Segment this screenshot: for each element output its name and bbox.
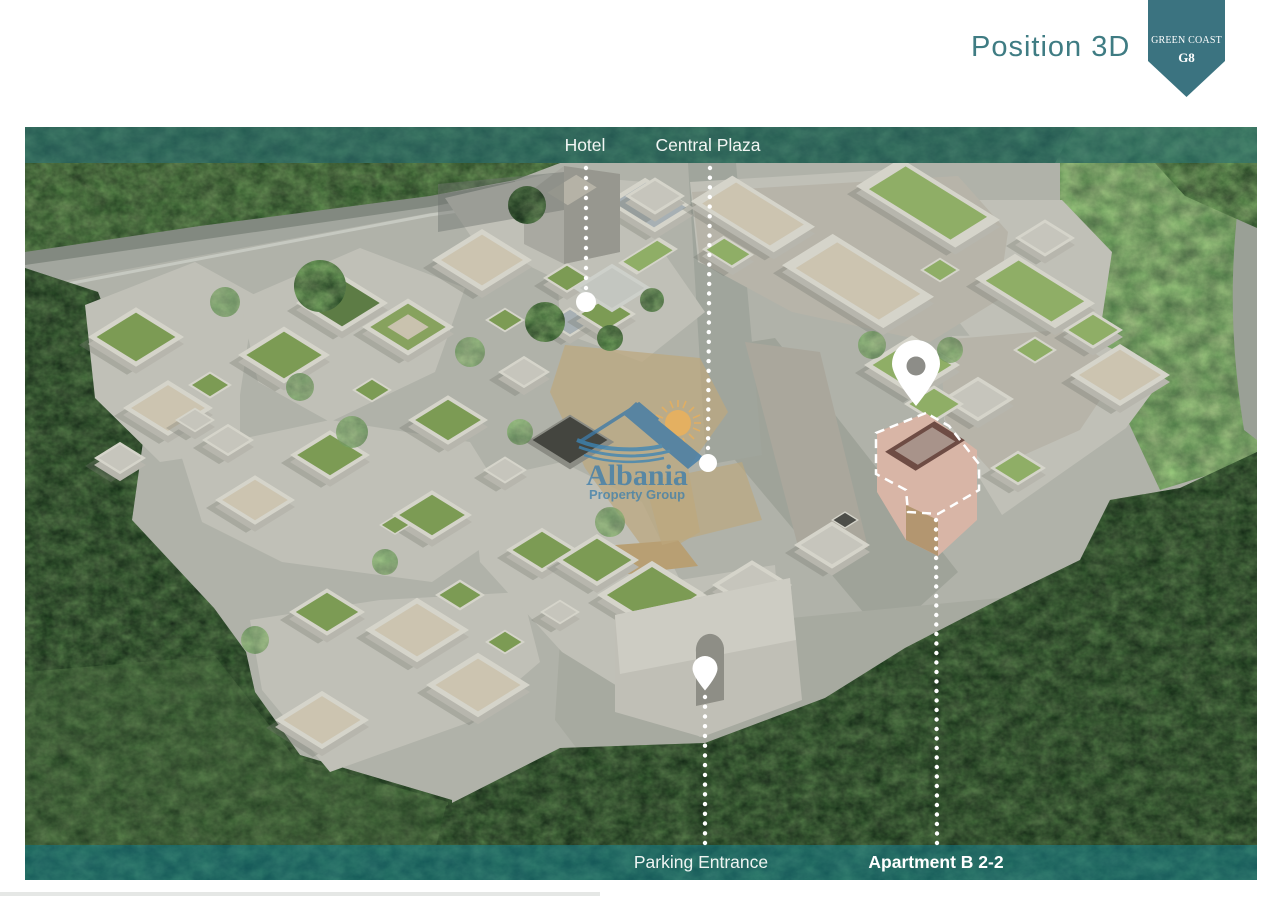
svg-text:G8: G8 [1178,50,1195,65]
svg-text:Central Plaza: Central Plaza [655,135,760,155]
svg-text:GREEN COAST: GREEN COAST [1151,35,1222,46]
svg-text:Hotel: Hotel [565,135,606,155]
svg-text:Apartment B 2-2: Apartment B 2-2 [868,852,1003,872]
svg-text:Property Group: Property Group [589,487,685,502]
svg-text:Parking Entrance: Parking Entrance [634,852,768,872]
